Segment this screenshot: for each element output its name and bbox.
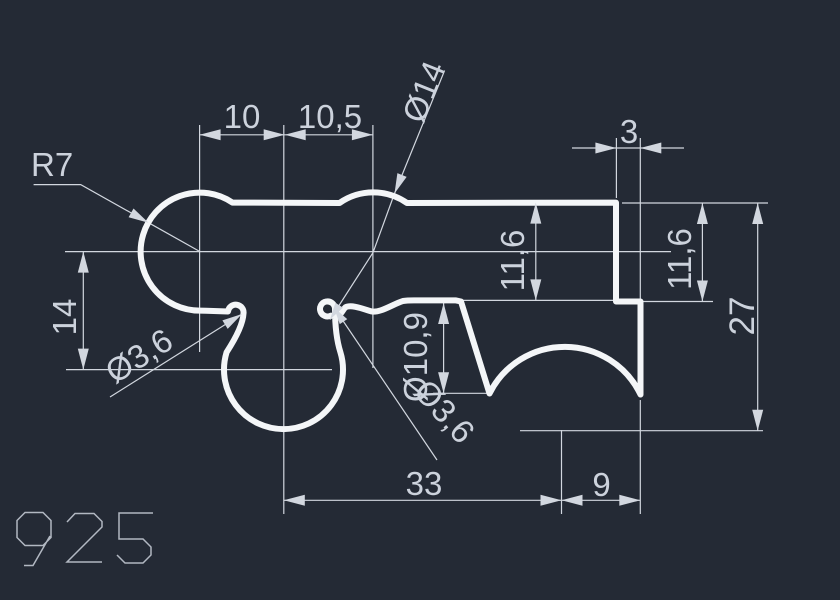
- svg-text:9: 9: [592, 466, 610, 503]
- svg-text:10: 10: [224, 98, 261, 135]
- svg-text:10,5: 10,5: [298, 98, 362, 135]
- svg-text:14: 14: [46, 299, 83, 336]
- svg-text:11,6: 11,6: [661, 228, 698, 290]
- svg-text:11,6: 11,6: [494, 230, 531, 292]
- svg-text:R7: R7: [31, 146, 73, 183]
- svg-text:3: 3: [620, 113, 638, 150]
- svg-text:27: 27: [723, 297, 762, 336]
- svg-text:33: 33: [406, 465, 443, 502]
